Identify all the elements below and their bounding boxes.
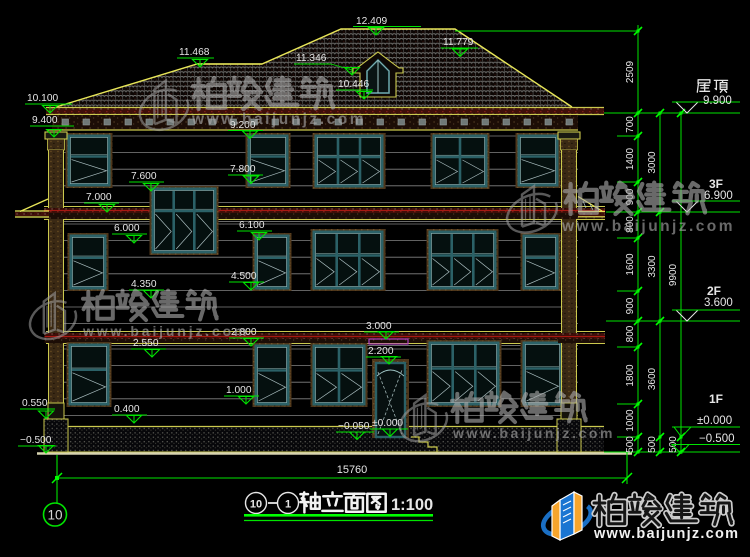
svg-text:1600: 1600: [625, 253, 636, 276]
svg-text:±0.000: ±0.000: [697, 415, 732, 427]
svg-text:3600: 3600: [647, 367, 658, 390]
svg-text:700: 700: [625, 116, 636, 133]
svg-text:2.550: 2.550: [133, 338, 159, 349]
svg-text:11.779: 11.779: [443, 37, 474, 48]
svg-text:1F: 1F: [709, 392, 723, 406]
svg-text:1.000: 1.000: [226, 385, 252, 396]
svg-text:12.409: 12.409: [356, 16, 387, 27]
svg-text:6.100: 6.100: [239, 220, 265, 231]
svg-text:10.446: 10.446: [338, 79, 369, 90]
svg-text:11.346: 11.346: [296, 53, 327, 64]
svg-text:0.400: 0.400: [114, 404, 140, 415]
svg-text:9.400: 9.400: [32, 115, 58, 126]
svg-text:3300: 3300: [647, 255, 658, 278]
svg-text:6.000: 6.000: [114, 223, 140, 234]
svg-text:0.550: 0.550: [22, 398, 48, 409]
svg-text:10: 10: [47, 508, 62, 523]
svg-text:4.350: 4.350: [131, 279, 157, 290]
svg-text:2509: 2509: [625, 60, 636, 83]
svg-text:−0.500: −0.500: [20, 435, 52, 446]
svg-text:7.600: 7.600: [131, 171, 157, 182]
svg-text:500: 500: [625, 436, 636, 453]
svg-text:1:100: 1:100: [391, 496, 433, 514]
svg-text:4.500: 4.500: [231, 271, 257, 282]
svg-text:9900: 9900: [668, 263, 679, 286]
svg-text:15760: 15760: [337, 464, 368, 476]
svg-text:900: 900: [625, 297, 636, 314]
svg-text:2.200: 2.200: [368, 346, 394, 357]
svg-text:10.100: 10.100: [27, 93, 58, 104]
svg-text:6.900: 6.900: [704, 190, 733, 202]
svg-text:800: 800: [625, 325, 636, 342]
svg-text:1: 1: [285, 499, 291, 511]
svg-text:1000: 1000: [625, 409, 636, 432]
svg-text:7.800: 7.800: [230, 164, 256, 175]
svg-text:11.468: 11.468: [179, 47, 210, 58]
svg-text:±0.000: ±0.000: [372, 418, 403, 429]
svg-text:−0.050: −0.050: [338, 421, 370, 432]
svg-text:www.baijunjz.com: www.baijunjz.com: [593, 526, 738, 542]
svg-text:7.000: 7.000: [86, 192, 112, 203]
svg-text:−0.500: −0.500: [699, 433, 735, 445]
svg-text:3.000: 3.000: [366, 321, 392, 332]
svg-text:3.600: 3.600: [704, 297, 733, 309]
svg-text:10: 10: [250, 499, 262, 511]
svg-text:2F: 2F: [707, 284, 721, 298]
svg-text:3F: 3F: [709, 177, 723, 191]
svg-text:1400: 1400: [625, 147, 636, 170]
svg-text:500: 500: [647, 436, 658, 453]
svg-text:1800: 1800: [625, 364, 636, 387]
svg-text:9.900: 9.900: [703, 95, 732, 107]
svg-text:3000: 3000: [647, 151, 658, 174]
